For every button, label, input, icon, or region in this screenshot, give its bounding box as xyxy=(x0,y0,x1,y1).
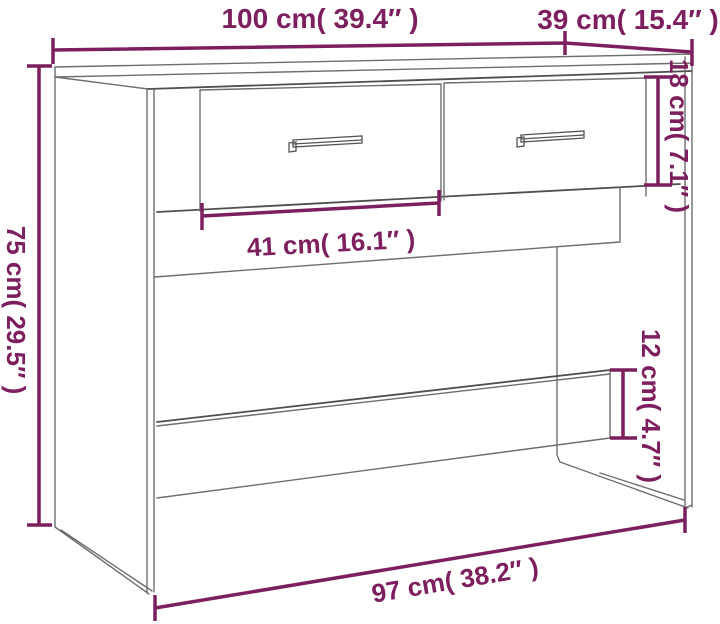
dim-label-100cm: 100 cm( 39.4″ ) xyxy=(221,3,418,34)
tabletop-outline xyxy=(55,54,692,89)
dim-label-18cm: 18 cm( 7.1″ ) xyxy=(664,59,694,213)
dim-top-width-100cm: 100 cm( 39.4″ ) xyxy=(53,3,565,64)
dim-line-100cm xyxy=(53,31,565,64)
dim-rail-height-12cm: 12 cm( 4.7″ ) xyxy=(610,329,666,483)
dim-label-12cm: 12 cm( 4.7″ ) xyxy=(636,329,666,483)
dimension-lines: 100 cm( 39.4″ ) 39 cm( 15.4″ ) 18 cm( 7.… xyxy=(1,3,719,621)
left-side-panel xyxy=(55,77,154,594)
dim-overall-height-75cm: 75 cm( 29.5″ ) xyxy=(1,66,52,525)
drawer-row-bottom-edge xyxy=(157,184,680,212)
furniture-outline xyxy=(55,54,692,594)
dim-label-75cm: 75 cm( 29.5″ ) xyxy=(1,226,31,395)
drawer-1-front xyxy=(200,84,441,211)
dim-drawer-height-18cm: 18 cm( 7.1″ ) xyxy=(644,59,694,213)
bottom-rail-top-edge xyxy=(157,370,610,422)
drawer-handles xyxy=(289,131,584,152)
dim-line-12cm xyxy=(610,370,637,438)
dim-line-97cm xyxy=(155,507,685,621)
dim-label-39cm: 39 cm( 15.4″ ) xyxy=(537,4,719,35)
drawer-1-handle xyxy=(289,136,362,152)
dim-label-41cm: 41 cm( 16.1″ ) xyxy=(246,224,416,263)
bottom-rail xyxy=(157,370,610,498)
diagram-canvas: 100 cm( 39.4″ ) 39 cm( 15.4″ ) 18 cm( 7.… xyxy=(0,0,720,624)
console-table-dimension-diagram: 100 cm( 39.4″ ) 39 cm( 15.4″ ) 18 cm( 7.… xyxy=(0,0,720,624)
dim-drawer-width-41cm: 41 cm( 16.1″ ) xyxy=(202,190,439,262)
drawer-2-handle xyxy=(517,131,584,147)
dim-base-width-97cm: 97 cm( 38.2″ ) xyxy=(155,507,685,621)
